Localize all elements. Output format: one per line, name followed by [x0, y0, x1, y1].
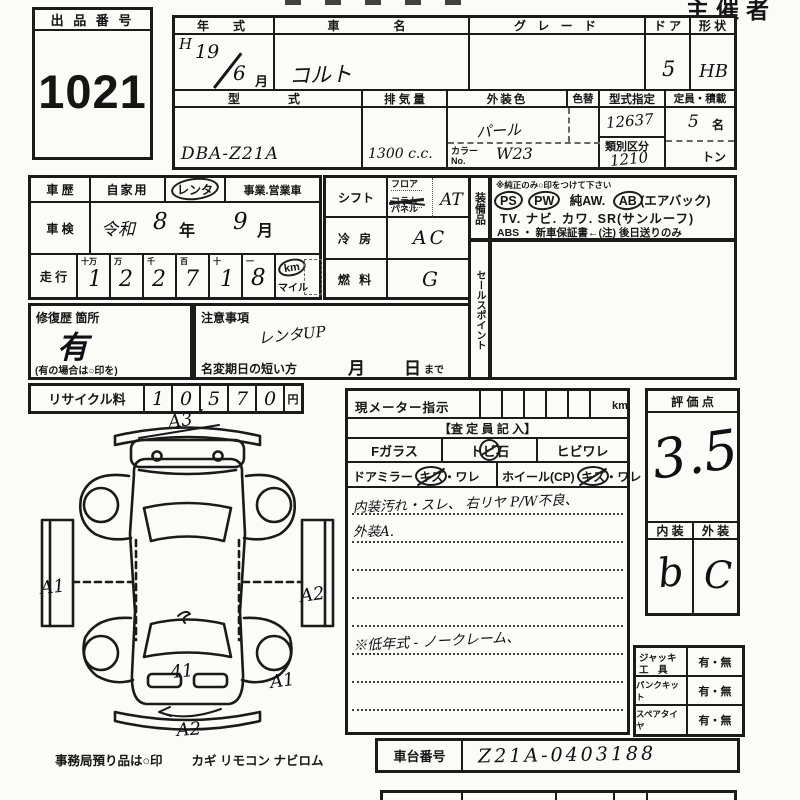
shaken-year-unit: 年 [179, 217, 195, 241]
lot-label: 出 品 番 号 [35, 10, 150, 31]
note-line [352, 569, 623, 571]
wheel-label: ホイール(CP) [502, 470, 575, 484]
shaken-label: 車 検 [31, 203, 91, 255]
fender-front-left [80, 475, 131, 539]
repair-value: 有 [57, 322, 88, 367]
wheel-row: ホイール(CP) キズ・ワレ [502, 468, 641, 485]
name-cell: コルト [275, 35, 470, 91]
rename-month: 月 [348, 354, 365, 379]
deposit-items: カギ リモコン ナビロム [192, 754, 324, 768]
mileage-d4: 十 1 [210, 255, 243, 298]
load-value: トン [702, 148, 726, 165]
shift-opt-floor: フロア [391, 179, 422, 191]
rating-header: 評 価 点 [648, 391, 737, 413]
mileage-digit: 7 [185, 267, 199, 292]
digit-col-label: 十万 [81, 256, 97, 267]
equip-ab-note: (エアバック) [640, 194, 710, 208]
color-name: パール [475, 118, 521, 142]
assessor-note-2: 外装A. [353, 520, 394, 540]
mark-a1-bottom-right: A1 [267, 669, 296, 693]
digit-col-label: 万 [114, 256, 122, 267]
mileage-digit: 1 [220, 267, 234, 292]
mileage-d3: 百 7 [177, 255, 210, 298]
sales-point-label: セールスポイント [472, 270, 487, 350]
puncture-label: パンクキット [636, 677, 688, 706]
lot-number: 1021 [35, 31, 150, 151]
wheel-front-left [84, 488, 118, 522]
note-line [352, 709, 623, 711]
meter-box [501, 391, 523, 419]
vehicle-table: 年 式 車 名 グ レ ー ド ド ア 形 状 H 19 6 月 コルト 5 H… [172, 15, 737, 170]
note-line [352, 681, 623, 683]
fender-rear-left [84, 618, 134, 682]
puncture-value: 有・無 [688, 677, 742, 706]
tobi-cell: ト ビ 石 [443, 439, 538, 463]
wheel-front-right [257, 488, 291, 522]
door-count: 5 [662, 57, 675, 81]
wheel-rear-left [84, 636, 118, 670]
cooling-value: AC [413, 227, 447, 249]
shape-header: 形 状 [691, 18, 734, 35]
mirror-row: ドアミラー キズ・ワレ [353, 468, 479, 485]
mirror-ware: ・ワレ [443, 470, 479, 484]
assessor-header: 【査 定 員 記 入】 [348, 419, 627, 439]
repair-box: 修復歴 箇所 有 (有の場合は○印を) [28, 303, 193, 380]
meter-table: 現メーター指示 km 【査 定 員 記 入】 Fガラス ト ビ 石 ヒビワレ ド… [345, 388, 630, 735]
cutoff-bottom-table [380, 790, 737, 800]
shaken-cell: 令和 8 年 9 月 [91, 203, 319, 255]
rename-day: 日 [404, 354, 421, 379]
assessor-note-3: ※低年式 - ノークレーム、 [353, 627, 521, 656]
equip-aw: 純AW. [570, 194, 605, 208]
mileage-d2: 千 2 [144, 255, 177, 298]
desig-header: 型式指定 [600, 91, 666, 108]
history-private: 自家用 [91, 178, 166, 203]
exterior-cell: C [694, 540, 737, 613]
lot-box: 出 品 番 号 1021 [32, 7, 153, 160]
shift-label: シフト [326, 178, 388, 218]
assessor-notes: 内装汚れ・スレ、 右リヤ P/W不良、 外装A. ※低年式 - ノークレーム、 [348, 488, 627, 732]
model-code: DBA-Z21A [181, 144, 279, 164]
chassis-box: 車台番号 Z21A-0403188 [375, 738, 740, 773]
model-cell: DBA-Z21A [175, 108, 363, 170]
km-circled: km [283, 261, 300, 275]
jack-label-2: 工 具 [639, 662, 668, 676]
shaken-month: 9 [233, 209, 248, 235]
repair-note: (有の場合は○印を) [35, 362, 118, 377]
desig-value: 12637 [605, 110, 654, 132]
grade-header: グ レ ー ド [470, 18, 646, 35]
meter-box [523, 391, 545, 419]
cutoff-divider [646, 793, 648, 800]
equipment-strip-label: 装備品 [472, 192, 488, 225]
color-no-value: W23 [496, 144, 533, 163]
equipment-box: ※純正のみ○印をつけて下さい PS PW 純AW. AB (エアバック) TV.… [489, 175, 737, 241]
note-line [352, 625, 623, 627]
month-value: 6 [233, 61, 246, 85]
mileage-unit-cell: km マイル [276, 255, 319, 298]
office-note: 事務局預り品は○印 [55, 754, 163, 768]
grade-cell [470, 35, 646, 91]
wheel-rear-right [257, 636, 291, 670]
interior-header: 内 装 [648, 521, 694, 540]
capacity-unit: 名 [712, 116, 724, 133]
interior-grade: b [656, 549, 686, 597]
history-rental: レンタ [166, 178, 226, 203]
side-panel-right [302, 520, 333, 626]
rear-window [144, 620, 231, 658]
jack-label-cell: ジャッキ 工 具 [636, 648, 688, 677]
capacity-header: 定員・積載 [666, 91, 734, 108]
mileage-digit: 8 [251, 265, 266, 291]
mile-box [304, 259, 322, 295]
mirror-cell: ドアミラー キズ・ワレ [348, 463, 498, 488]
caution-label: 注意事項 [201, 309, 249, 326]
digit-col-label: 十 [213, 256, 221, 267]
cutoff-divider [555, 793, 557, 800]
mark-center: 41 [169, 660, 195, 683]
equipment-line1: PS PW 純AW. AB (エアバック) [500, 190, 711, 209]
fuel-cell: G [388, 260, 472, 298]
cooling-cell: AC [388, 218, 472, 260]
name-header: 車 名 [275, 18, 470, 35]
hood-line [139, 470, 236, 474]
month-unit: 月 [255, 71, 268, 90]
car-name: コルト [288, 58, 352, 90]
note-line [352, 541, 623, 543]
year-header: 年 式 [175, 18, 275, 35]
year-value: 19 [195, 41, 219, 63]
rating-score: 3.5 [648, 417, 742, 491]
capacity-value: 5 [688, 112, 699, 132]
meter-box [479, 391, 501, 419]
note-line [352, 597, 623, 599]
equipment-strip: 装備品 [468, 175, 491, 241]
mileage-d1: 万 2 [111, 255, 144, 298]
spare-value: 有・無 [688, 706, 742, 734]
rear-light-right [194, 674, 227, 687]
mark-a2-right: A2 [297, 583, 326, 607]
recycle-label: リサイクル料 [31, 386, 145, 411]
wheel-ware: ・ワレ [605, 470, 641, 484]
fglass-cell: Fガラス [348, 439, 443, 463]
front-windshield [144, 503, 231, 541]
history-label: 車 歴 [31, 178, 91, 203]
displacement: 1300 c.c. [368, 146, 433, 162]
cutoff-divider [613, 793, 615, 800]
shift-table: シフト フロア コラム パネル AT 冷 房 AC 燃 料 G [323, 175, 475, 300]
shape-cell: HB [691, 35, 734, 91]
caution-box: 注意事項 レンタUP 名変期日の短い方 月 日 まで [193, 303, 477, 380]
auction-sheet: 主催者用 出 品 番 号 1021 年 式 車 名 グ レ ー ド ド ア 形 … [0, 0, 800, 800]
recycle-digit: 0 [173, 386, 201, 411]
meter-unit: km [612, 400, 628, 412]
color-change-divider [568, 108, 570, 142]
fender-front-right [244, 475, 295, 539]
rename-label: 名変期日の短い方 [201, 360, 297, 377]
digit-col-label: 千 [147, 256, 155, 267]
equip-pw-circled: PW [534, 194, 554, 208]
meter-box [545, 391, 567, 419]
interior-cell: b [648, 540, 694, 613]
color-header: 外装色 [448, 91, 568, 108]
shaken-month-unit: 月 [257, 217, 273, 241]
capacity-cell: 5 名 トン [666, 108, 734, 170]
assessor-note-1: 内装汚れ・スレ、 右リヤ P/W不良、 [353, 488, 579, 516]
shaken-era: 令和 [101, 215, 135, 240]
door-header: ド ア [646, 18, 691, 35]
spare-label: スペアタイヤ [636, 706, 688, 734]
digit-col-label: 百 [180, 256, 188, 267]
shift-value: AT [440, 190, 463, 210]
history-table: 車 歴 自家用 レンタ 事業.営業車 車 検 令和 8 年 9 月 走 行 十万… [28, 175, 322, 300]
wheel-kizu-marked: キズ [581, 468, 605, 485]
shift-opt-divider [432, 178, 433, 218]
exterior-grade: C [704, 554, 732, 597]
mileage-digit: 2 [152, 267, 166, 292]
fuel-label: 燃 料 [326, 260, 388, 298]
equip-ab-circled: AB [619, 194, 637, 208]
hibi-cell: ヒビワレ [538, 439, 627, 463]
mileage-digit: 2 [119, 267, 133, 292]
history-business: 事業.営業車 [226, 178, 319, 203]
side-panel-left [42, 520, 73, 626]
sales-point-box [489, 239, 737, 380]
exterior-header: 外 装 [694, 521, 737, 540]
mileage-d5: 一 8 [243, 255, 276, 298]
shaken-year: 8 [153, 209, 168, 235]
mileage-d0: 十万 1 [78, 255, 111, 298]
chassis-label: 車台番号 [378, 741, 463, 770]
jack-value: 有・無 [688, 648, 742, 677]
meter-box [567, 391, 589, 419]
capacity-divider [666, 140, 734, 142]
recycle-digit: 1 [145, 386, 173, 411]
recycle-digit: 0 [257, 386, 285, 411]
mark-a3: A3 [165, 412, 194, 433]
meter-row: 現メーター指示 km [348, 391, 627, 419]
rear-arrow [159, 707, 221, 716]
rating-box: 評 価 点 3.5 内 装 外 装 b C [645, 388, 740, 616]
shift-cell: フロア コラム パネル AT [388, 178, 472, 218]
recycle-digit: 5 [201, 386, 229, 411]
mirror-kizu-marked: キズ [419, 468, 443, 485]
cutoff-print-fragment [285, 0, 475, 5]
car-damage-diagram: A3 A1 A2 41 A1 A2 [35, 412, 340, 742]
rename-made: まで [424, 361, 444, 376]
color-cell: パール カラー No. W23 [448, 108, 600, 170]
tobi-bi-marked: ビ [483, 441, 496, 460]
color-no-label: カラー No. [451, 146, 478, 166]
wheel-cell: ホイール(CP) キズ・ワレ [498, 463, 627, 488]
cutoff-divider [461, 793, 463, 800]
tools-table: ジャッキ 工 具 有・無 パンクキット 有・無 スペアタイヤ 有・無 [633, 645, 745, 737]
mark-a1-left: A1 [37, 576, 66, 600]
mileage-digit: 1 [88, 267, 102, 292]
footer-note-row: 事務局預り品は○印 カギ リモコン ナビロム [55, 750, 323, 769]
mileage-label: 走 行 [31, 255, 78, 298]
color-change-header: 色替 [568, 91, 600, 108]
mark-a2-bottom: A2 [174, 718, 202, 741]
mirror-label: ドアミラー [353, 470, 413, 484]
equipment-line3: ABS ・ 新車保証書←(注) 後日送りのみ [497, 225, 682, 240]
cooling-label: 冷 房 [326, 218, 388, 260]
center-scribble [178, 612, 190, 623]
equip-ps-circled: PS [500, 194, 517, 208]
door-cell: 5 [646, 35, 691, 91]
rental-circled: レンタ [177, 181, 213, 198]
front-bumper [131, 440, 244, 467]
shift-opt-panel: パネル [391, 204, 418, 214]
body-shape: HB [699, 61, 728, 82]
recycle-digit: 7 [229, 386, 257, 411]
model-header: 型 式 [175, 91, 363, 108]
meter-label: 現メーター指示 [355, 397, 450, 416]
chassis-value: Z21A-0403188 [478, 742, 656, 767]
meter-box [589, 391, 611, 419]
year-cell: H 19 6 月 [175, 35, 275, 91]
fuel-value: G [422, 267, 438, 291]
disp-cell: 1300 c.c. [363, 108, 448, 170]
year-era: H [179, 35, 192, 53]
caution-value: レンタUP [257, 321, 327, 349]
sales-point-strip: セールスポイント [468, 239, 491, 380]
recycle-box: リサイクル料 1 0 5 7 0 , 円 [28, 383, 304, 414]
recycle-unit: 円 [285, 386, 301, 411]
disp-header: 排 気 量 [363, 91, 448, 108]
desig-cell: 12637 類別区分 1210 [600, 108, 666, 170]
class-value: 1210 [609, 148, 649, 170]
